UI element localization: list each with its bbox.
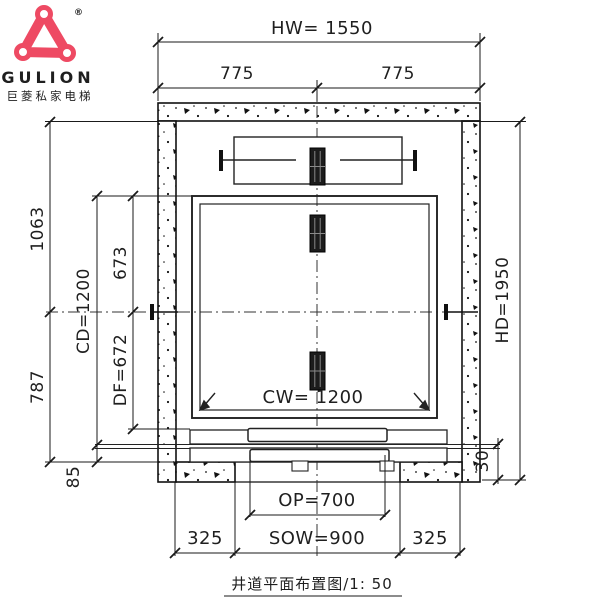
wall-top — [158, 103, 480, 121]
rail-block-middle — [310, 215, 325, 252]
dim-label-cw1200: CW= 1200 — [263, 387, 364, 408]
door-jamb-left — [292, 461, 308, 471]
brand-logo: ® GULION 巨菱私家电梯 — [1, 8, 94, 104]
dim-label-85: 85 — [64, 466, 84, 489]
dim-label-673: 673 — [111, 246, 131, 280]
logo-circle-left — [17, 46, 30, 59]
dim-label-30: 30 — [473, 450, 493, 473]
shaft-plan-drawing: HW= 1550 775 775 1063 787 CD=1200 85 673… — [0, 0, 600, 600]
logo-circle-top — [38, 8, 51, 21]
wall-left — [158, 121, 176, 482]
dim-label-325-left: 325 — [187, 528, 223, 549]
landing-door-panel — [250, 450, 389, 462]
dim-top: HW= 1550 775 775 — [153, 18, 485, 101]
dim-label-op700: OP=700 — [278, 490, 355, 511]
rail-block-bottom — [310, 352, 325, 390]
wall-bottom-left-pier — [176, 462, 235, 482]
logo-tagline-text: 巨菱私家电梯 — [7, 89, 94, 103]
dim-label-1063: 1063 — [28, 206, 48, 251]
dim-top-lines — [158, 33, 480, 101]
dim-label-sow900: SOW=900 — [269, 528, 365, 549]
logo-brand-text: GULION — [1, 68, 94, 87]
door-jamb-right — [380, 461, 394, 471]
dim-label-325-right: 325 — [412, 528, 448, 549]
dim-label-hd1950: HD=1950 — [493, 257, 513, 344]
dim-label-df672: DF=672 — [111, 334, 131, 407]
wall-bottom-right-pier — [400, 462, 462, 482]
caption: 井道平面布置图/1: 50 — [224, 575, 402, 596]
caption-title: 井道平面布置图/1: 50 — [231, 575, 393, 593]
dim-label-cd1200: CD=1200 — [74, 268, 94, 354]
wall-right — [462, 121, 480, 482]
car-door-panel — [248, 429, 387, 442]
dim-label-787: 787 — [28, 370, 48, 404]
shaft-plan-page: HW= 1550 775 775 1063 787 CD=1200 85 673… — [0, 0, 600, 600]
logo-circle-right — [61, 47, 74, 60]
dim-label-775-right: 775 — [381, 64, 415, 84]
dim-label-775-left: 775 — [220, 64, 254, 84]
brand-logo-icon — [17, 8, 74, 60]
logo-registered-mark: ® — [74, 8, 83, 18]
dim-label-hw: HW= 1550 — [271, 18, 373, 39]
rail-block-top — [310, 148, 325, 185]
